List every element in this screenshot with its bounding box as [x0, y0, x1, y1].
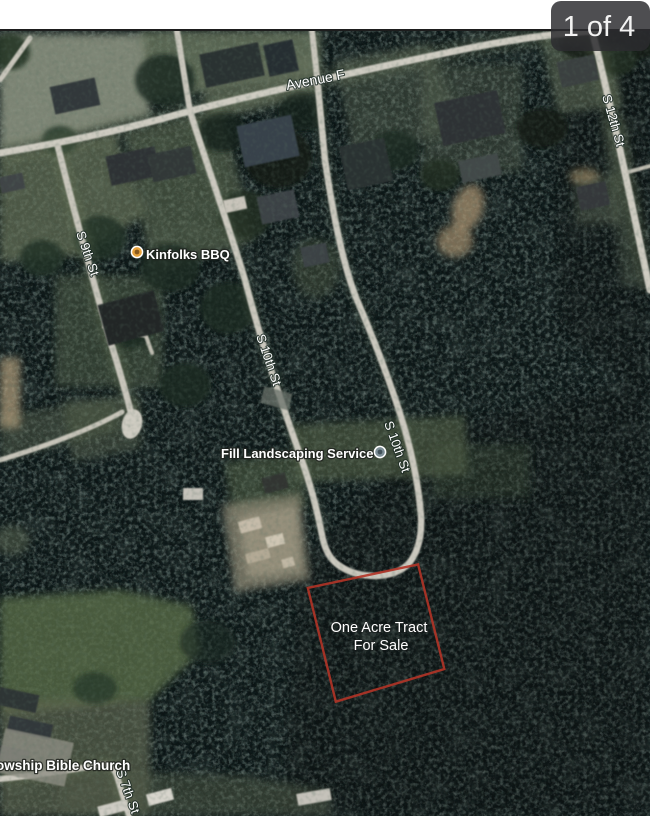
svg-text:Fill Landscaping Service: Fill Landscaping Service [221, 446, 373, 461]
svg-text:1 of 4: 1 of 4 [563, 11, 636, 43]
svg-text:One Acre Tract: One Acre Tract [331, 620, 428, 636]
svg-text:Kinfolks BBQ: Kinfolks BBQ [146, 247, 230, 262]
svg-text:owship Bible Church: owship Bible Church [0, 758, 130, 773]
svg-text:For Sale: For Sale [354, 638, 409, 654]
